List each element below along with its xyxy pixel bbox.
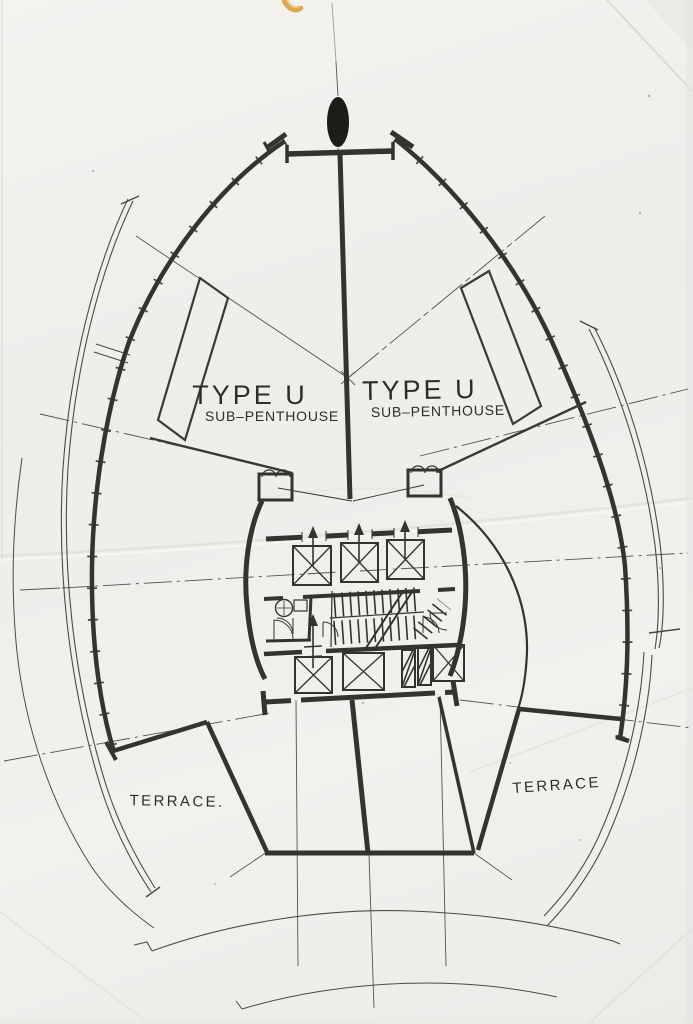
apex-column xyxy=(327,97,349,147)
stair-run xyxy=(330,590,444,650)
svg-text:TERRACE: TERRACE xyxy=(512,774,601,797)
terrace-label-left: TERRACE. xyxy=(129,792,224,811)
unit-title-left: TYPE U xyxy=(192,380,308,410)
elevator-core xyxy=(246,466,466,715)
unit-label-left: TYPE U xyxy=(192,380,308,410)
scan-artifacts xyxy=(92,0,661,885)
wc-room xyxy=(266,597,311,641)
center-spine-wall xyxy=(340,154,368,853)
terrace-label-right: TERRACE xyxy=(512,774,601,797)
curtain-walls xyxy=(92,139,629,760)
unit-label-right: TYPE U xyxy=(362,374,478,406)
door-swings xyxy=(274,613,447,639)
floor-plan-svg: TYPE U SUB–PENTHOUSE TYPE U SUB–PENTHOUS… xyxy=(0,0,693,1024)
svg-text:TERRACE.: TERRACE. xyxy=(129,792,224,811)
unit-subtitle-right: SUB–PENTHOUSE xyxy=(371,402,505,420)
unit-title-right: TYPE U xyxy=(362,374,478,406)
unit-subtitle-left: SUB–PENTHOUSE xyxy=(205,408,339,424)
elevator-cars xyxy=(293,540,464,693)
hatched-shafts xyxy=(402,648,431,687)
scanned-floor-plan: TYPE U SUB–PENTHOUSE TYPE U SUB–PENTHOUS… xyxy=(0,0,693,1024)
